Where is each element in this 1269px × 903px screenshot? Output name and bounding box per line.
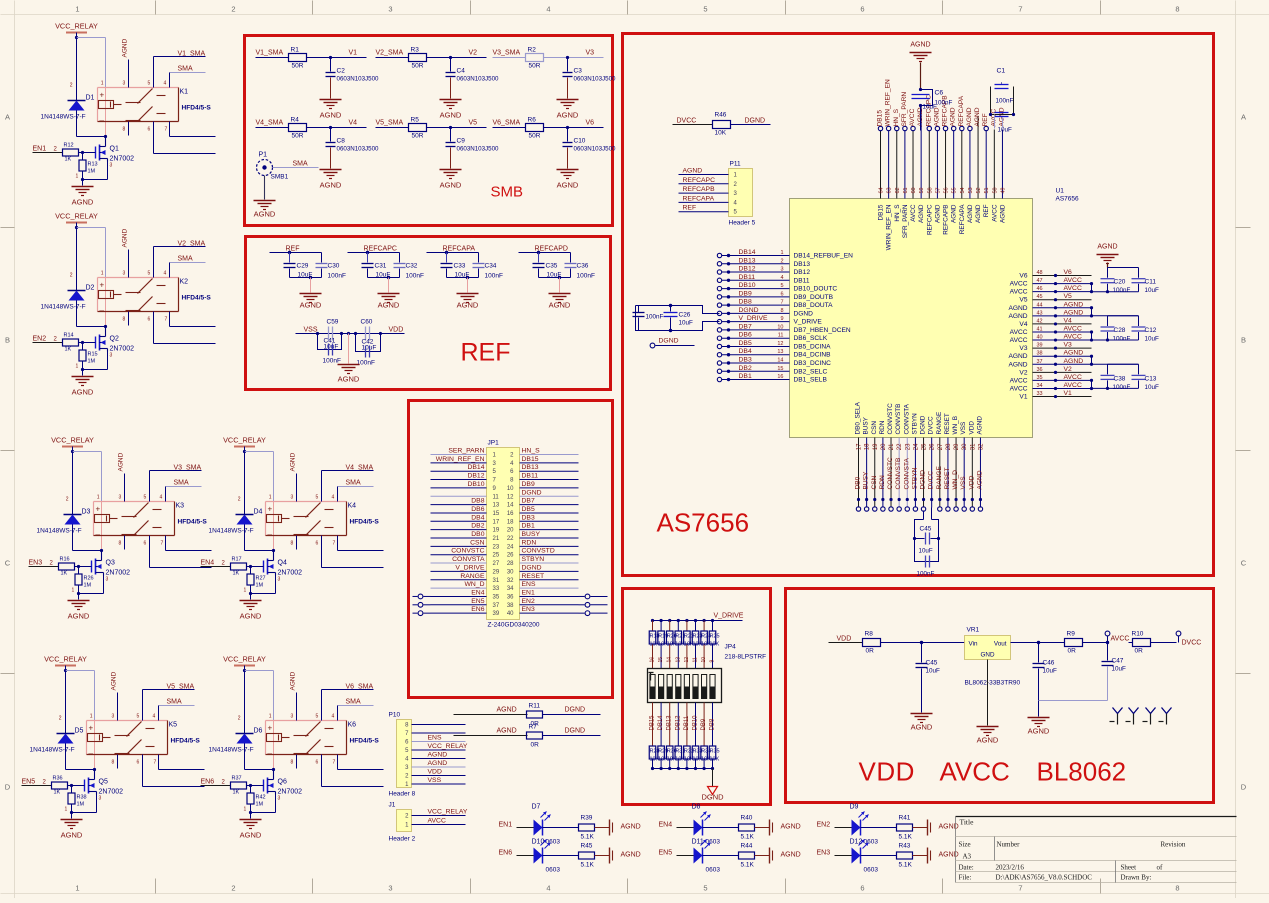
svg-text:CSN: CSN [871, 475, 878, 489]
svg-text:EN3: EN3 [522, 606, 535, 613]
svg-text:AVCC: AVCC [1064, 334, 1082, 341]
svg-text:2N7002: 2N7002 [110, 346, 135, 353]
svg-text:VCC_RELAY: VCC_RELAY [44, 655, 87, 664]
svg-text:AGND: AGND [320, 181, 342, 190]
svg-text:61: 61 [903, 187, 909, 193]
svg-text:DVCC: DVCC [677, 118, 697, 125]
svg-text:7: 7 [780, 300, 783, 306]
svg-text:21: 21 [493, 536, 500, 542]
svg-text:R8: R8 [865, 631, 874, 638]
svg-text:D3: D3 [82, 509, 91, 516]
svg-text:R36: R36 [53, 776, 63, 782]
svg-text:DB6_SCLK: DB6_SCLK [794, 335, 828, 342]
svg-text:V3: V3 [1019, 345, 1027, 352]
svg-text:R6: R6 [528, 117, 537, 124]
svg-text:Revision: Revision [1161, 841, 1186, 849]
svg-text:REFCAPB: REFCAPB [683, 186, 716, 193]
svg-text:AGND: AGND [549, 301, 571, 310]
svg-text:DB6: DB6 [471, 506, 484, 513]
svg-text:25: 25 [493, 553, 500, 559]
svg-text:AGND: AGND [950, 107, 957, 126]
svg-text:VCC_RELAY: VCC_RELAY [428, 743, 468, 750]
svg-text:REFCAPA: REFCAPA [683, 195, 715, 202]
svg-text:Header 5: Header 5 [729, 220, 756, 227]
svg-text:AGND: AGND [61, 831, 83, 840]
svg-text:30: 30 [962, 443, 968, 450]
svg-text:AGND: AGND [72, 198, 94, 207]
svg-text:C: C [1241, 559, 1247, 568]
svg-text:DB8: DB8 [471, 498, 484, 505]
svg-text:R3: R3 [411, 47, 420, 54]
svg-text:AVCC: AVCC [1010, 281, 1028, 288]
svg-text:1: 1 [269, 714, 272, 720]
svg-text:10uF: 10uF [455, 272, 470, 279]
svg-text:10uF: 10uF [926, 668, 941, 675]
svg-text:K5: K5 [169, 722, 178, 729]
svg-text:20: 20 [507, 528, 514, 534]
svg-text:CONVSTA: CONVSTA [903, 458, 910, 490]
svg-text:35: 35 [493, 594, 500, 600]
svg-text:2: 2 [238, 716, 241, 722]
svg-text:Drawn By:: Drawn By: [1121, 874, 1152, 882]
svg-text:33: 33 [1037, 391, 1043, 397]
svg-text:10K: 10K [715, 130, 727, 137]
svg-text:DB0: DB0 [471, 531, 484, 538]
svg-text:Q1: Q1 [110, 146, 119, 153]
svg-text:50R: 50R [529, 63, 541, 70]
svg-text:218-8LPSTRF: 218-8LPSTRF [725, 654, 767, 661]
svg-text:100nF: 100nF [323, 358, 341, 365]
svg-text:VSS: VSS [960, 476, 967, 490]
svg-text:10K: 10K [710, 757, 720, 763]
svg-text:EN5: EN5 [659, 850, 673, 857]
svg-text:2N7002: 2N7002 [110, 156, 135, 163]
svg-text:CONVSTA: CONVSTA [452, 556, 485, 563]
svg-text:27: 27 [493, 561, 500, 567]
svg-text:0603N103J500: 0603N103J500 [337, 76, 380, 83]
svg-text:5: 5 [137, 714, 140, 720]
svg-text:DB13: DB13 [739, 257, 756, 264]
svg-text:DVCC: DVCC [928, 471, 935, 490]
svg-text:V4: V4 [1064, 317, 1073, 324]
svg-text:AGND: AGND [999, 204, 1006, 223]
svg-text:RDN: RDN [522, 539, 537, 546]
svg-text:CONVSTC: CONVSTC [887, 403, 894, 435]
svg-text:100nF: 100nF [406, 273, 424, 280]
svg-text:DB15: DB15 [650, 715, 656, 731]
svg-text:BUSY: BUSY [863, 471, 870, 490]
svg-text:C36: C36 [577, 263, 589, 270]
svg-text:AS7656: AS7656 [657, 508, 750, 538]
svg-text:DGND: DGND [794, 310, 814, 317]
svg-text:SFR_PARN: SFR_PARN [901, 92, 908, 127]
svg-text:3: 3 [278, 577, 281, 583]
svg-text:2N7002: 2N7002 [99, 789, 124, 796]
svg-text:B: B [5, 336, 10, 345]
svg-text:DB10: DB10 [467, 481, 484, 488]
svg-text:8: 8 [780, 308, 783, 314]
svg-text:8: 8 [119, 541, 122, 547]
svg-text:EN4: EN4 [659, 822, 673, 829]
svg-text:AGND: AGND [1064, 358, 1084, 365]
svg-text:V_DRIVE: V_DRIVE [455, 564, 485, 571]
svg-text:1: 1 [76, 174, 79, 180]
svg-text:DGND: DGND [701, 793, 724, 802]
svg-text:2N7002: 2N7002 [278, 789, 303, 796]
svg-text:4: 4 [160, 495, 163, 501]
svg-text:V6_SMA: V6_SMA [493, 120, 521, 127]
svg-text:V5: V5 [469, 120, 478, 127]
svg-text:3: 3 [278, 796, 281, 802]
svg-text:_: _ [88, 746, 94, 755]
svg-text:10: 10 [507, 486, 514, 492]
svg-text:1M: 1M [256, 802, 264, 808]
svg-text:58: 58 [927, 187, 933, 193]
svg-text:HFD4/5-S: HFD4/5-S [182, 295, 212, 302]
svg-text:14: 14 [777, 358, 783, 364]
svg-text:V5: V5 [1019, 297, 1027, 304]
svg-text:REF: REF [982, 113, 989, 126]
svg-text:AVCC: AVCC [1010, 377, 1028, 384]
svg-text:R13: R13 [88, 162, 98, 168]
svg-text:49: 49 [1000, 187, 1006, 193]
svg-text:10uF: 10uF [298, 272, 313, 279]
svg-text:1: 1 [65, 807, 68, 813]
svg-text:AGND: AGND [977, 736, 999, 745]
svg-text:5: 5 [703, 5, 707, 14]
svg-text:AVCC: AVCC [1010, 385, 1028, 392]
svg-text:DB0_SELA: DB0_SELA [855, 401, 862, 434]
svg-text:DGND: DGND [745, 118, 766, 125]
svg-text:AGND: AGND [68, 612, 90, 621]
svg-text:AVCC: AVCC [910, 204, 917, 222]
svg-text:D6: D6 [254, 728, 263, 735]
svg-text:10K: 10K [710, 642, 720, 648]
svg-text:A: A [1241, 113, 1246, 122]
svg-text:A3: A3 [963, 853, 972, 861]
svg-text:DVCC: DVCC [928, 416, 935, 434]
svg-text:C32: C32 [406, 263, 418, 270]
svg-text:5.1K: 5.1K [741, 834, 755, 841]
svg-text:AGND: AGND [1064, 350, 1084, 357]
svg-text:7: 7 [1018, 884, 1022, 893]
svg-text:DGND: DGND [920, 470, 927, 490]
svg-text:C45: C45 [920, 526, 932, 533]
svg-text:DB14: DB14 [658, 715, 664, 731]
svg-text:32: 32 [507, 578, 514, 584]
svg-text:C59: C59 [327, 319, 339, 326]
svg-text:AGND: AGND [1064, 309, 1084, 316]
svg-text:SMA: SMA [178, 256, 194, 263]
svg-text:0603: 0603 [864, 839, 879, 846]
svg-text:55: 55 [952, 187, 958, 193]
svg-text:SMA: SMA [167, 699, 183, 706]
svg-text:AVCC: AVCC [1064, 285, 1082, 292]
svg-text:EN1: EN1 [499, 822, 513, 829]
svg-text:K1: K1 [180, 89, 189, 96]
svg-text:1K: 1K [54, 790, 61, 796]
svg-text:C12: C12 [1145, 327, 1157, 334]
svg-text:1: 1 [90, 714, 93, 720]
svg-text:AGND: AGND [910, 42, 930, 49]
svg-text:13: 13 [777, 349, 783, 355]
svg-text:26: 26 [507, 553, 514, 559]
svg-text:53: 53 [968, 187, 974, 193]
svg-text:AGND: AGND [951, 204, 958, 223]
svg-text:AGND: AGND [934, 204, 941, 223]
svg-text:AVCC: AVCC [940, 757, 1010, 787]
svg-text:0603N103J500: 0603N103J500 [574, 76, 617, 83]
svg-text:VCC_RELAY: VCC_RELAY [223, 436, 266, 445]
svg-text:C38: C38 [1114, 375, 1126, 382]
svg-text:5.1K: 5.1K [741, 862, 755, 869]
svg-text:52: 52 [976, 187, 982, 193]
svg-text:AVCC: AVCC [1064, 277, 1082, 284]
svg-text:R40: R40 [741, 815, 753, 822]
svg-text:1: 1 [780, 250, 783, 256]
svg-text:Vout: Vout [994, 641, 1007, 648]
svg-text:V6: V6 [1064, 269, 1073, 276]
svg-text:35: 35 [1037, 375, 1043, 381]
svg-text:SMA: SMA [178, 66, 194, 73]
svg-text:R10: R10 [1132, 631, 1144, 638]
svg-text:RESET: RESET [944, 468, 951, 490]
svg-text:R35: R35 [710, 749, 720, 755]
svg-text:0603N103J500: 0603N103J500 [457, 76, 500, 83]
svg-text:D2: D2 [86, 285, 95, 292]
svg-text:3: 3 [291, 495, 294, 501]
svg-text:5: 5 [703, 884, 707, 893]
svg-text:D:\ADK\AS7656_V8.0.SCHDOC: D:\ADK\AS7656_V8.0.SCHDOC [996, 874, 1093, 882]
svg-text:AVCC: AVCC [909, 108, 916, 126]
svg-text:7: 7 [154, 760, 157, 766]
svg-text:JP1: JP1 [488, 440, 500, 447]
svg-text:DB9: DB9 [739, 290, 752, 297]
svg-text:EN2: EN2 [522, 598, 535, 605]
svg-text:3: 3 [110, 353, 113, 359]
svg-text:AVCC: AVCC [1010, 329, 1028, 336]
svg-text:AGND: AGND [976, 470, 983, 489]
svg-text:File:: File: [959, 874, 972, 882]
svg-text:100nF: 100nF [646, 314, 664, 321]
svg-text:_: _ [267, 746, 273, 755]
svg-text:REF: REF [983, 204, 990, 217]
svg-text:42: 42 [1037, 318, 1043, 324]
svg-text:_: _ [95, 527, 101, 536]
svg-text:JP4: JP4 [725, 644, 737, 651]
svg-text:1: 1 [101, 81, 104, 87]
svg-text:R25: R25 [710, 634, 720, 640]
svg-text:C47: C47 [1112, 658, 1124, 665]
svg-text:V_DRIVE: V_DRIVE [794, 319, 823, 326]
svg-text:14: 14 [507, 503, 514, 509]
svg-text:7: 7 [165, 317, 168, 323]
svg-text:RDN: RDN [879, 420, 886, 434]
svg-text:47: 47 [1037, 278, 1043, 284]
svg-text:1K: 1K [61, 571, 68, 577]
svg-text:DB15: DB15 [877, 110, 884, 127]
svg-text:EN3: EN3 [817, 850, 831, 857]
svg-text:C13: C13 [1145, 375, 1157, 382]
svg-text:R11: R11 [529, 703, 541, 710]
svg-text:2: 2 [66, 497, 69, 503]
svg-text:D12: D12 [850, 839, 863, 846]
svg-text:Q3: Q3 [106, 560, 115, 567]
svg-text:C6: C6 [935, 90, 944, 97]
svg-text:11: 11 [693, 657, 699, 662]
svg-text:2: 2 [70, 83, 73, 89]
svg-text:34: 34 [1037, 383, 1043, 389]
svg-text:EN2: EN2 [817, 822, 831, 829]
svg-text:D4: D4 [254, 509, 263, 516]
svg-text:R9: R9 [1067, 631, 1076, 638]
svg-text:VCC_RELAY: VCC_RELAY [428, 809, 468, 816]
svg-text:V4_SMA: V4_SMA [256, 120, 284, 127]
svg-text:AVCC: AVCC [1064, 374, 1082, 381]
svg-text:Q6: Q6 [278, 779, 287, 786]
svg-text:12: 12 [507, 494, 514, 500]
svg-text:18: 18 [865, 443, 871, 450]
svg-text:AGND: AGND [428, 752, 448, 759]
svg-text:1: 1 [244, 807, 247, 813]
svg-text:C1: C1 [997, 68, 1006, 75]
svg-text:8: 8 [291, 541, 294, 547]
svg-text:0603: 0603 [864, 867, 879, 874]
svg-text:RANGE: RANGE [936, 412, 943, 435]
svg-text:38: 38 [1037, 351, 1043, 357]
svg-text:C28: C28 [1114, 327, 1126, 334]
svg-text:DB15: DB15 [878, 204, 885, 220]
svg-text:10uF: 10uF [376, 272, 391, 279]
svg-text:0603: 0603 [706, 839, 721, 846]
svg-text:C: C [5, 559, 11, 568]
svg-text:AGND: AGND [290, 671, 297, 690]
svg-text:DGND: DGND [522, 564, 542, 571]
svg-text:50R: 50R [412, 133, 424, 140]
svg-text:DB2: DB2 [739, 365, 752, 372]
svg-text:R41: R41 [899, 815, 911, 822]
svg-text:+: + [89, 724, 94, 733]
svg-text:CSN: CSN [470, 539, 484, 546]
svg-text:DB9_DOUTB: DB9_DOUTB [794, 294, 834, 301]
svg-text:C11: C11 [1145, 279, 1157, 286]
svg-text:DGND: DGND [522, 489, 542, 496]
svg-text:Size: Size [959, 841, 971, 849]
svg-text:CONVSTB: CONVSTB [895, 404, 902, 435]
svg-text:HFD4/5-S: HFD4/5-S [182, 105, 212, 112]
svg-text:DB12: DB12 [467, 473, 484, 480]
svg-text:R12: R12 [64, 143, 74, 149]
svg-text:DB5: DB5 [522, 506, 535, 513]
svg-text:2N7002: 2N7002 [278, 570, 303, 577]
svg-text:DB10_DOUTC: DB10_DOUTC [794, 286, 838, 293]
svg-text:9: 9 [780, 316, 783, 322]
svg-text:25: 25 [922, 443, 928, 450]
svg-text:D5: D5 [75, 728, 84, 735]
svg-text:DB12: DB12 [675, 715, 681, 731]
svg-text:HFD4/5-S: HFD4/5-S [350, 738, 380, 745]
svg-text:SMA: SMA [346, 699, 362, 706]
svg-text:10uF: 10uF [1043, 668, 1058, 675]
svg-text:VDD: VDD [968, 475, 975, 489]
svg-text:10uF: 10uF [1145, 336, 1160, 343]
svg-text:C33: C33 [454, 263, 466, 270]
svg-text:GND: GND [981, 652, 995, 659]
svg-text:AGND: AGND [240, 612, 262, 621]
svg-text:VCC_RELAY: VCC_RELAY [223, 655, 266, 664]
svg-text:29: 29 [493, 569, 500, 575]
svg-text:5.1K: 5.1K [581, 834, 595, 841]
svg-text:AVCC: AVCC [1064, 382, 1082, 389]
svg-text:C4: C4 [457, 68, 466, 75]
svg-text:C3: C3 [574, 68, 583, 75]
svg-text:DB4: DB4 [471, 514, 484, 521]
svg-text:AGND: AGND [1097, 244, 1117, 251]
svg-text:EN3: EN3 [29, 560, 43, 567]
svg-text:1M: 1M [88, 169, 96, 175]
svg-text:DB11: DB11 [739, 274, 756, 281]
svg-text:10: 10 [777, 324, 783, 330]
svg-text:DB6: DB6 [739, 332, 752, 339]
svg-text:R27: R27 [256, 576, 266, 582]
svg-text:DB14_REFBUF_EN: DB14_REFBUF_EN [794, 253, 854, 260]
svg-text:0603: 0603 [546, 867, 561, 874]
svg-text:K3: K3 [176, 503, 185, 510]
svg-text:DGND: DGND [565, 707, 586, 714]
svg-text:AVCC: AVCC [428, 818, 446, 825]
svg-text:REFCAPC: REFCAPC [926, 204, 933, 235]
svg-text:DGND: DGND [565, 728, 586, 735]
svg-text:K4: K4 [348, 503, 357, 510]
svg-text:24: 24 [507, 544, 514, 550]
svg-text:5: 5 [316, 714, 319, 720]
svg-text:18: 18 [507, 519, 514, 525]
svg-text:13: 13 [493, 503, 500, 509]
svg-text:DB11: DB11 [522, 473, 539, 480]
svg-text:37: 37 [493, 603, 500, 609]
svg-text:+: + [268, 724, 273, 733]
svg-text:8: 8 [291, 760, 294, 766]
svg-text:P10: P10 [389, 712, 401, 719]
svg-text:DB11: DB11 [684, 715, 690, 730]
svg-text:AGND: AGND [497, 707, 517, 714]
svg-text:50R: 50R [412, 63, 424, 70]
svg-text:46: 46 [1037, 286, 1043, 292]
svg-text:1: 1 [75, 5, 79, 14]
svg-text:100nF: 100nF [996, 98, 1014, 105]
svg-text:DGND: DGND [920, 415, 927, 434]
svg-text:EN5: EN5 [22, 779, 36, 786]
svg-text:32: 32 [978, 443, 984, 450]
svg-text:R37: R37 [232, 776, 242, 782]
svg-text:2: 2 [70, 273, 73, 279]
svg-text:1N4148WS-7-F: 1N4148WS-7-F [41, 114, 86, 121]
svg-text:56: 56 [944, 187, 950, 193]
svg-text:AGND: AGND [378, 301, 400, 310]
svg-text:28: 28 [946, 443, 952, 450]
svg-text:1: 1 [269, 495, 272, 501]
svg-text:6: 6 [316, 541, 319, 547]
svg-text:AGND: AGND [72, 388, 94, 397]
svg-text:VDD: VDD [968, 421, 975, 435]
svg-text:C46: C46 [1043, 660, 1055, 667]
svg-text:51: 51 [984, 187, 990, 193]
svg-text:10uF: 10uF [998, 127, 1013, 134]
svg-text:DB1: DB1 [739, 373, 752, 380]
svg-text:Q4: Q4 [278, 560, 287, 567]
svg-text:SMB: SMB [491, 184, 524, 201]
svg-text:DB10: DB10 [739, 282, 756, 289]
